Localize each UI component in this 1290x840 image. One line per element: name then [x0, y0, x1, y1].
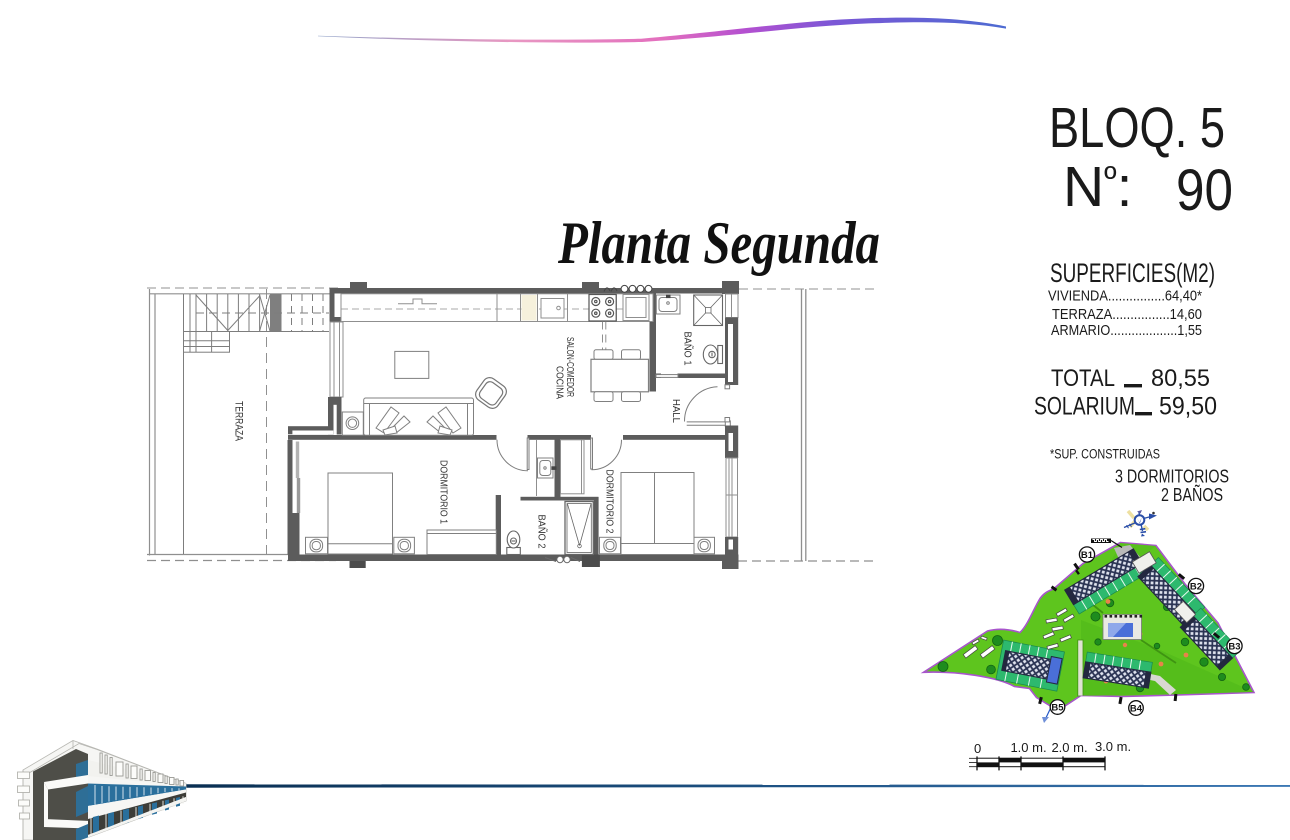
- svg-text:0: 0: [974, 741, 981, 756]
- svg-text:TERRAZA................14,60: TERRAZA................14,60: [1052, 306, 1202, 323]
- svg-text:B5: B5: [1051, 703, 1064, 714]
- svg-text:2 BAÑOS: 2 BAÑOS: [1161, 484, 1223, 505]
- svg-text:DORMITORIO 1: DORMITORIO 1: [438, 460, 449, 524]
- svg-text:BAÑO 1: BAÑO 1: [682, 332, 695, 366]
- svg-text:B1: B1: [1081, 550, 1094, 561]
- svg-text:ARMARIO...................1,55: ARMARIO...................1,55: [1051, 322, 1202, 339]
- svg-text:VIVIENDA................64,40*: VIVIENDA................64,40*: [1048, 288, 1202, 305]
- svg-text:B2: B2: [1190, 582, 1202, 593]
- svg-text:COCINA: COCINA: [554, 366, 565, 399]
- svg-text:BLOQ. 5: BLOQ. 5: [1049, 96, 1225, 160]
- svg-text:Nº:: Nº:: [1063, 155, 1132, 219]
- svg-text:1.0 m.: 1.0 m.: [1010, 740, 1046, 755]
- svg-text:SOLARIUM: SOLARIUM: [1034, 393, 1135, 421]
- svg-text:Planta Segunda: Planta Segunda: [557, 210, 880, 276]
- svg-text:DORMITORIO 2: DORMITORIO 2: [604, 470, 615, 534]
- svg-text:2.0 m.: 2.0 m.: [1051, 740, 1087, 755]
- svg-text:TERRAZA: TERRAZA: [233, 401, 245, 442]
- svg-text:TOTAL: TOTAL: [1051, 365, 1115, 392]
- svg-text:*SUP. CONSTRUIDAS: *SUP. CONSTRUIDAS: [1050, 446, 1160, 461]
- svg-text:3 DORMITORIOS: 3 DORMITORIOS: [1115, 466, 1229, 486]
- svg-text:59,50: 59,50: [1159, 393, 1217, 421]
- svg-text:B4: B4: [1130, 704, 1143, 715]
- svg-text:BAÑO 2: BAÑO 2: [536, 515, 549, 549]
- svg-text:SUPERFICIES(M2): SUPERFICIES(M2): [1050, 258, 1215, 288]
- svg-text:90: 90: [1176, 158, 1233, 223]
- svg-text:80,55: 80,55: [1151, 365, 1210, 392]
- svg-text:SALON-COMEDOR: SALON-COMEDOR: [564, 337, 575, 397]
- svg-text:3.0 m.: 3.0 m.: [1095, 739, 1131, 754]
- svg-text:B3: B3: [1228, 642, 1240, 653]
- svg-text:HALL: HALL: [670, 399, 681, 423]
